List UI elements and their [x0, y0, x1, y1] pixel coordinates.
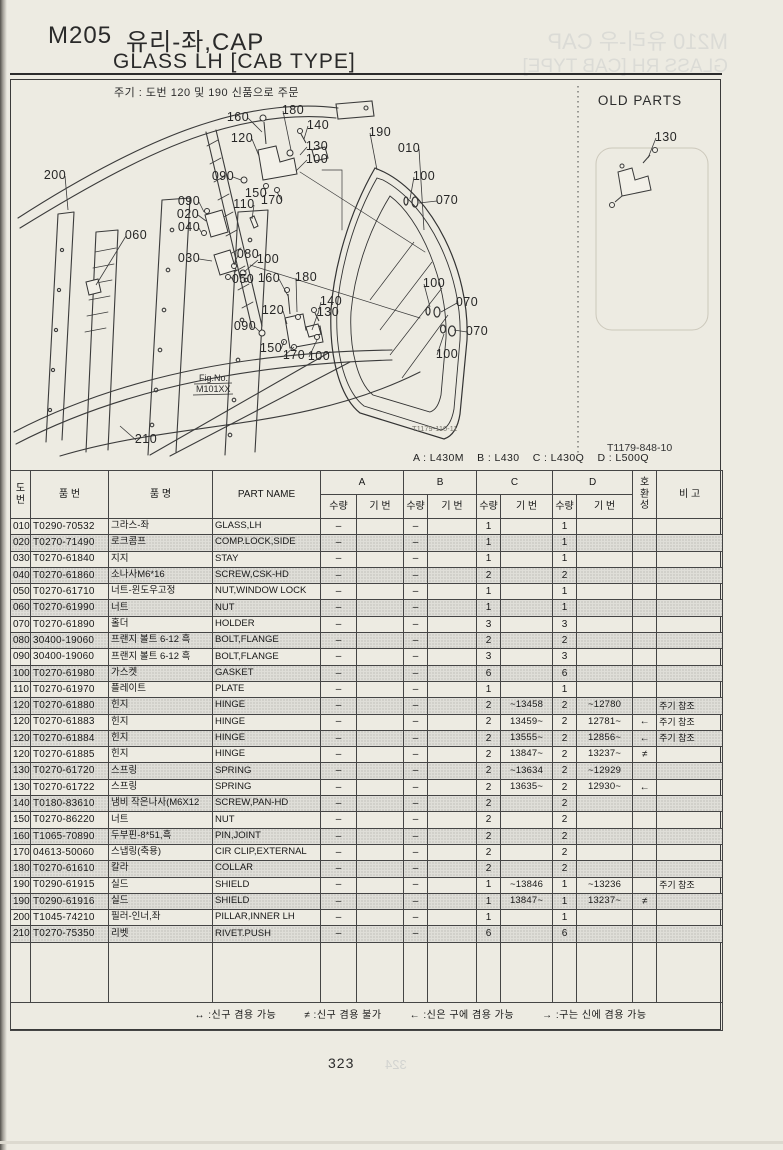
col-group-b: B: [404, 471, 477, 495]
cell-dq: 6: [553, 665, 577, 681]
cell-en: NUT: [213, 600, 321, 616]
cell-en: PIN,JOINT: [213, 828, 321, 844]
cell-aq: –: [321, 600, 357, 616]
cell-no: 010: [11, 519, 31, 535]
cell-cs: 13459~: [501, 714, 553, 730]
cell-ds: [577, 665, 633, 681]
cell-rm: [657, 616, 723, 632]
cell-dq: 2: [553, 698, 577, 714]
legend-item: ↔ :신구 겸용 가능: [194, 1010, 276, 1021]
cell-dq: 1: [553, 681, 577, 697]
cell-cs: 13847~: [501, 747, 553, 763]
cell-aq: –: [321, 681, 357, 697]
callout-label: 100: [413, 169, 435, 183]
col-header-qty-b: 수량: [404, 495, 428, 519]
cell-bs: [428, 730, 477, 746]
callout-label: 190: [369, 125, 391, 139]
cell-kr: 너트-윈도우고정: [109, 584, 213, 600]
cell-pn: T0270-75350: [31, 926, 109, 942]
cell-cp: [633, 763, 657, 779]
cell-cq: 3: [477, 616, 501, 632]
cell-bs: [428, 747, 477, 763]
cell-cq: 1: [477, 681, 501, 697]
cell-cq: 1: [477, 551, 501, 567]
cell-bq: –: [404, 633, 428, 649]
cell-dq: 1: [553, 600, 577, 616]
cell-cs: 13847~: [501, 893, 553, 909]
callout-label: 050: [232, 272, 254, 286]
cell-kr: 실드: [109, 877, 213, 893]
table-row: 150T0270-86220너트NUT––22: [11, 812, 723, 828]
cell-bs: [428, 698, 477, 714]
table-row: 020T0270-71490로크콤프COMP.LOCK,SIDE––11: [11, 535, 723, 551]
cell-cp: ←: [633, 730, 657, 746]
cell-en: PILLAR,INNER LH: [213, 910, 321, 926]
table-row: 060T0270-61990너트NUT––11: [11, 600, 723, 616]
cell-cp: [633, 519, 657, 535]
callout-label: 120: [231, 131, 253, 145]
cell-cs: [501, 616, 553, 632]
cell-kr: 실드: [109, 893, 213, 909]
cell-bq: –: [404, 877, 428, 893]
old-parts-zone: OLD PARTS: [578, 86, 708, 454]
cell-cq: 2: [477, 828, 501, 844]
cell-kr: 리벳: [109, 926, 213, 942]
cell-rm: [657, 551, 723, 567]
cell-as: [357, 616, 404, 632]
callout-label: 120: [262, 303, 284, 317]
cell-cs: [501, 567, 553, 583]
cell-aq: –: [321, 633, 357, 649]
cell-rm: [657, 535, 723, 551]
cell-aq: –: [321, 779, 357, 795]
cell-aq: –: [321, 649, 357, 665]
cell-ds: 12930~: [577, 779, 633, 795]
cell-pn: T0290-61916: [31, 893, 109, 909]
cell-ds: [577, 926, 633, 942]
cell-pn: 30400-19060: [31, 649, 109, 665]
cell-en: SCREW,CSK-HD: [213, 567, 321, 583]
cell-bs: [428, 877, 477, 893]
cell-pn: T0270-61880: [31, 698, 109, 714]
cell-bq: –: [404, 747, 428, 763]
cell-kr: 홀더: [109, 616, 213, 632]
cell-no: 130: [11, 779, 31, 795]
cell-bs: [428, 535, 477, 551]
cell-cp: [633, 926, 657, 942]
cell-no: 120: [11, 730, 31, 746]
callout-label: 080: [237, 247, 259, 261]
cell-cp: [633, 535, 657, 551]
cell-kr: 힌지: [109, 730, 213, 746]
cell-pn: T0270-61990: [31, 600, 109, 616]
callout-label: 210: [135, 432, 157, 446]
cell-as: [357, 910, 404, 926]
cell-cq: 2: [477, 633, 501, 649]
cell-bs: [428, 600, 477, 616]
cell-cq: 1: [477, 910, 501, 926]
cell-aq: –: [321, 812, 357, 828]
col-group-a: A: [321, 471, 404, 495]
callout-label: 130: [317, 305, 339, 319]
callout-leader-line: [419, 149, 424, 230]
cell-aq: –: [321, 926, 357, 942]
cell-rm: [657, 633, 723, 649]
cell-bq: –: [404, 763, 428, 779]
cell-cs: [501, 665, 553, 681]
cell-bq: –: [404, 844, 428, 860]
cell-as: [357, 714, 404, 730]
cell-no: 180: [11, 861, 31, 877]
cell-cs: [501, 600, 553, 616]
cell-pn: T0290-61915: [31, 877, 109, 893]
cell-kr: 지지: [109, 551, 213, 567]
catalog-section-code: M205: [48, 22, 112, 57]
cell-rm: 주기 참조: [657, 714, 723, 730]
cell-bs: [428, 812, 477, 828]
callout-label: 160: [258, 271, 280, 285]
cell-bq: –: [404, 812, 428, 828]
table-row: 130T0270-61722스프링SPRING––213635~212930~←: [11, 779, 723, 795]
cell-rm: [657, 584, 723, 600]
cell-bs: [428, 616, 477, 632]
col-header-serial-b: 기 번: [428, 495, 477, 519]
cell-bs: [428, 714, 477, 730]
cell-no: 160: [11, 828, 31, 844]
cell-en: STAY: [213, 551, 321, 567]
cell-rm: 주기 참조: [657, 730, 723, 746]
callout-label: 130: [306, 139, 328, 153]
fig-no-label: Fig.No.: [199, 373, 228, 383]
cell-rm: [657, 844, 723, 860]
exploded-parts-diagram: OLD PARTS Fig.No. M101XX T1179-110-11 T1…: [10, 80, 722, 458]
cell-no: 200: [11, 910, 31, 926]
cell-en: SHIELD: [213, 877, 321, 893]
cell-en: SCREW,PAN-HD: [213, 796, 321, 812]
table-row: 040T0270-61860소나사M6*16SCREW,CSK-HD––22: [11, 567, 723, 583]
cell-ds: 12781~: [577, 714, 633, 730]
cell-as: [357, 698, 404, 714]
callout-leader-line: [419, 201, 437, 203]
cell-kr: 두부핀-8*51,흑: [109, 828, 213, 844]
cell-dq: 2: [553, 828, 577, 844]
cell-cq: 2: [477, 730, 501, 746]
legend-row: ↔ :신구 겸용 가능≠ :신구 겸용 불가← :신은 구에 겸용 가능→ :구…: [11, 1002, 723, 1030]
cell-dq: 1: [553, 551, 577, 567]
cell-ds: [577, 812, 633, 828]
cell-cq: 1: [477, 535, 501, 551]
cell-kr: 가스켓: [109, 665, 213, 681]
cell-bs: [428, 893, 477, 909]
cell-aq: –: [321, 910, 357, 926]
cell-cq: 6: [477, 665, 501, 681]
cell-ds: [577, 567, 633, 583]
cell-cq: 3: [477, 649, 501, 665]
callout-labels: 1601801401201301000901501701101900101000…: [44, 103, 677, 446]
cell-pn: T0270-61883: [31, 714, 109, 730]
cell-bs: [428, 649, 477, 665]
cell-as: [357, 730, 404, 746]
cell-rm: 주기 참조: [657, 877, 723, 893]
cell-rm: [657, 649, 723, 665]
cell-as: [357, 535, 404, 551]
cell-pn: T0270-61884: [31, 730, 109, 746]
col-group-d: D: [553, 471, 633, 495]
cell-cp: [633, 665, 657, 681]
cell-cq: 2: [477, 844, 501, 860]
cell-dq: 2: [553, 861, 577, 877]
callout-label: 180: [295, 270, 317, 284]
cell-kr: 너트: [109, 812, 213, 828]
callout-label: 100: [436, 347, 458, 361]
cell-cs: ~13846: [501, 877, 553, 893]
col-header-ref-no: 도번: [11, 471, 31, 519]
cell-no: 190: [11, 877, 31, 893]
cell-as: [357, 763, 404, 779]
cell-pn: T0270-61710: [31, 584, 109, 600]
table-row: 010T0290-70532그라스-좌GLASS,LH––11: [11, 519, 723, 535]
cell-bs: [428, 567, 477, 583]
cell-ds: ~12780: [577, 698, 633, 714]
cell-en: SPRING: [213, 763, 321, 779]
cell-no: 020: [11, 535, 31, 551]
cell-no: 190: [11, 893, 31, 909]
cell-dq: 1: [553, 519, 577, 535]
cell-aq: –: [321, 893, 357, 909]
cell-rm: [657, 600, 723, 616]
cell-bq: –: [404, 681, 428, 697]
cell-as: [357, 796, 404, 812]
cell-bq: –: [404, 828, 428, 844]
cell-aq: –: [321, 698, 357, 714]
cell-kr: 프랜지 볼트 6-12 흑: [109, 649, 213, 665]
cell-no: 110: [11, 681, 31, 697]
cell-no: 130: [11, 763, 31, 779]
cell-no: 120: [11, 698, 31, 714]
bleed-through-title: M210 유리-우 CAP GLASS RH [CAB TYPE]: [468, 24, 728, 78]
cell-pn: T0270-61970: [31, 681, 109, 697]
cell-kr: 그라스-좌: [109, 519, 213, 535]
cell-pn: T0270-61980: [31, 665, 109, 681]
cell-as: [357, 649, 404, 665]
cell-en: RIVET.PUSH: [213, 926, 321, 942]
cell-rm: [657, 665, 723, 681]
cell-bs: [428, 551, 477, 567]
cell-cs: [501, 861, 553, 877]
cell-ds: [577, 796, 633, 812]
cell-ds: [577, 828, 633, 844]
callout-label: 090: [178, 194, 200, 208]
table-row: 120T0270-61884힌지HINGE––213555~212856~←주기…: [11, 730, 723, 746]
legend-item: ≠ :신구 겸용 불가: [304, 1010, 381, 1021]
cell-kr: 프랜지 볼트 6-12 흑: [109, 633, 213, 649]
cell-en: COLLAR: [213, 861, 321, 877]
cell-bq: –: [404, 551, 428, 567]
cell-bs: [428, 681, 477, 697]
table-row: 120T0270-61885힌지HINGE––213847~213237~≠: [11, 747, 723, 763]
cell-no: 150: [11, 812, 31, 828]
cell-as: [357, 893, 404, 909]
cell-bs: [428, 519, 477, 535]
bleed-line1: M210 유리-우 CAP: [468, 24, 728, 56]
cell-dq: 3: [553, 616, 577, 632]
cell-ds: [577, 633, 633, 649]
callout-leader-line: [120, 426, 136, 440]
table-row: 110T0270-61970플레이트PLATE––11: [11, 681, 723, 697]
cell-en: BOLT,FLANGE: [213, 633, 321, 649]
cell-bs: [428, 910, 477, 926]
cell-cp: [633, 681, 657, 697]
cell-dq: 1: [553, 910, 577, 926]
cell-cp: [633, 828, 657, 844]
cell-cq: 6: [477, 926, 501, 942]
cell-bq: –: [404, 535, 428, 551]
table-row: 180T0270-61610칼라COLLAR––22: [11, 861, 723, 877]
cell-ds: [577, 600, 633, 616]
cell-en: HINGE: [213, 730, 321, 746]
callout-leader-line: [199, 259, 212, 261]
cell-pn: T0270-61890: [31, 616, 109, 632]
table-row: 140T0180-83610냄비 작은나사(M6X12SCREW,PAN-HD–…: [11, 796, 723, 812]
cell-ds: [577, 616, 633, 632]
cell-cq: 1: [477, 584, 501, 600]
cell-dq: 2: [553, 844, 577, 860]
cell-cp: [633, 584, 657, 600]
cell-dq: 2: [553, 812, 577, 828]
cell-aq: –: [321, 844, 357, 860]
cell-cs: [501, 584, 553, 600]
cell-aq: –: [321, 828, 357, 844]
cell-dq: 2: [553, 714, 577, 730]
cell-pn: T0270-61860: [31, 567, 109, 583]
old-parts-label: OLD PARTS: [598, 93, 682, 108]
cell-bs: [428, 844, 477, 860]
cell-ds: 13237~: [577, 747, 633, 763]
col-header-serial-a: 기 번: [357, 495, 404, 519]
cell-rm: [657, 926, 723, 942]
cell-pn: T0180-83610: [31, 796, 109, 812]
cell-bq: –: [404, 698, 428, 714]
bleed-through-page-number: 324: [385, 1057, 407, 1072]
callout-label: 160: [227, 110, 249, 124]
cell-bs: [428, 633, 477, 649]
cell-cq: 1: [477, 600, 501, 616]
cell-pn: T0270-61885: [31, 747, 109, 763]
cell-en: PLATE: [213, 681, 321, 697]
cell-bs: [428, 763, 477, 779]
cell-rm: [657, 567, 723, 583]
cell-ds: [577, 519, 633, 535]
table-row: 08030400-19060프랜지 볼트 6-12 흑BOLT,FLANGE––…: [11, 633, 723, 649]
fig-no-value: M101XX: [196, 384, 231, 394]
table-row: 17004613-50060스냅링(축용)CIR CLIP,EXTERNAL––…: [11, 844, 723, 860]
cell-cq: 2: [477, 763, 501, 779]
cell-pn: T0270-61840: [31, 551, 109, 567]
table-row: 120T0270-61883힌지HINGE––213459~212781~←주기…: [11, 714, 723, 730]
cell-kr: 스냅링(축용): [109, 844, 213, 860]
callout-label: 100: [306, 152, 328, 166]
cell-rm: [657, 910, 723, 926]
cell-cq: 2: [477, 796, 501, 812]
cell-bq: –: [404, 910, 428, 926]
cell-cp: [633, 812, 657, 828]
cell-ds: [577, 649, 633, 665]
cell-as: [357, 600, 404, 616]
cell-as: [357, 519, 404, 535]
cell-bs: [428, 828, 477, 844]
cell-no: 030: [11, 551, 31, 567]
cell-as: [357, 747, 404, 763]
title-underline: [10, 73, 722, 75]
cell-bq: –: [404, 730, 428, 746]
callout-label: 150: [260, 341, 282, 355]
cell-kr: 힌지: [109, 747, 213, 763]
cell-cs: [501, 910, 553, 926]
cell-rm: [657, 893, 723, 909]
table-row: 09030400-19060프랜지 볼트 6-12 흑BOLT,FLANGE––…: [11, 649, 723, 665]
cell-cp: [633, 633, 657, 649]
cell-cq: 2: [477, 747, 501, 763]
cell-as: [357, 828, 404, 844]
callout-label: 020: [177, 207, 199, 221]
cell-en: HINGE: [213, 698, 321, 714]
cell-pn: T0270-86220: [31, 812, 109, 828]
cell-en: HINGE: [213, 714, 321, 730]
legend-item: ← :신은 구에 겸용 가능: [410, 1010, 515, 1021]
callout-label: 100: [423, 276, 445, 290]
cell-cs: [501, 812, 553, 828]
cell-en: GLASS,LH: [213, 519, 321, 535]
cell-aq: –: [321, 567, 357, 583]
cell-pn: 30400-19060: [31, 633, 109, 649]
table-row: 200T1045-74210필러-인너,좌PILLAR,INNER LH––11: [11, 910, 723, 926]
cell-cs: 13555~: [501, 730, 553, 746]
cell-ds: [577, 861, 633, 877]
cell-no: 060: [11, 600, 31, 616]
callout-label: 090: [234, 319, 256, 333]
cell-no: 050: [11, 584, 31, 600]
callout-leader-line: [233, 177, 241, 180]
cell-dq: 3: [553, 649, 577, 665]
cell-en: HOLDER: [213, 616, 321, 632]
cell-cp: [633, 877, 657, 893]
table-row: 210T0270-75350리벳RIVET.PUSH––66: [11, 926, 723, 942]
cell-kr: 냄비 작은나사(M6X12: [109, 796, 213, 812]
cell-kr: 필러-인너,좌: [109, 910, 213, 926]
callout-leader-line: [248, 118, 262, 132]
cell-rm: [657, 796, 723, 812]
cell-cq: 1: [477, 519, 501, 535]
col-header-name-kr: 품 명: [109, 471, 213, 519]
cell-pn: T1045-74210: [31, 910, 109, 926]
cell-bs: [428, 584, 477, 600]
cell-bq: –: [404, 519, 428, 535]
cell-as: [357, 926, 404, 942]
cell-aq: –: [321, 584, 357, 600]
table-row: 050T0270-61710너트-윈도우고정NUT,WINDOW LOCK––1…: [11, 584, 723, 600]
cell-rm: [657, 747, 723, 763]
cell-dq: 6: [553, 926, 577, 942]
cell-as: [357, 812, 404, 828]
cell-cp: [633, 649, 657, 665]
cell-ds: [577, 681, 633, 697]
cell-en: BOLT,FLANGE: [213, 649, 321, 665]
cell-cs: [501, 649, 553, 665]
cell-cs: [501, 519, 553, 535]
cell-cs: ~13458: [501, 698, 553, 714]
cell-ds: [577, 910, 633, 926]
cell-rm: [657, 779, 723, 795]
